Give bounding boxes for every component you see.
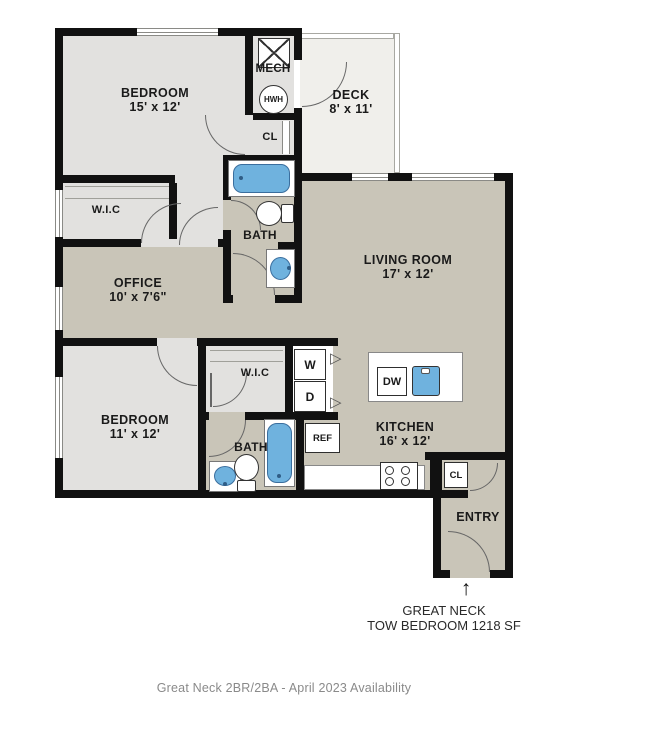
closet-shelf bbox=[65, 186, 169, 199]
label-text: MECH bbox=[246, 63, 300, 75]
floor-patch bbox=[223, 200, 231, 230]
label-text: BATH bbox=[221, 441, 281, 453]
wall bbox=[294, 181, 302, 303]
closet-shelf bbox=[210, 350, 283, 362]
bifold-door-icon: ▷ bbox=[330, 351, 342, 366]
plan-title-line2: TOW BEDROOM 1218 SF bbox=[314, 618, 574, 633]
stove-burner bbox=[385, 477, 394, 486]
wall bbox=[55, 490, 468, 498]
wall bbox=[55, 175, 175, 183]
wic-bottom-label: W.I.C bbox=[215, 367, 295, 379]
toilet bbox=[234, 454, 259, 481]
room-name: BEDROOM bbox=[85, 86, 225, 100]
dryer-label: D bbox=[306, 390, 315, 404]
label-text: ENTRY bbox=[444, 511, 512, 523]
window bbox=[137, 28, 218, 36]
label-text: W.I.C bbox=[215, 367, 295, 379]
room-label-kitchen: KITCHEN 16' x 12' bbox=[335, 420, 475, 448]
wall bbox=[296, 412, 304, 498]
tub-drain bbox=[239, 176, 243, 180]
entry-label: ENTRY bbox=[444, 511, 512, 523]
water-heater-label: HWH bbox=[264, 95, 283, 104]
water-heater: HWH bbox=[259, 85, 288, 114]
availability-caption: Great Neck 2BR/2BA - April 2023 Availabi… bbox=[84, 681, 484, 695]
stove-burner bbox=[385, 466, 394, 475]
wall bbox=[433, 490, 441, 578]
wall bbox=[197, 338, 338, 346]
refrigerator-label: REF bbox=[313, 433, 332, 444]
label-text: BATH bbox=[230, 229, 290, 241]
kitchen-sink-faucet bbox=[421, 368, 430, 374]
room-name: BEDROOM bbox=[65, 413, 205, 427]
sink-faucet bbox=[287, 266, 291, 270]
wic-top-label: W.I.C bbox=[66, 204, 146, 216]
washer-label: W bbox=[304, 358, 315, 372]
room-dims: 15' x 12' bbox=[85, 100, 225, 114]
room-dims: 17' x 12' bbox=[333, 267, 483, 281]
wall bbox=[55, 239, 141, 247]
dishwasher-box: DW bbox=[377, 367, 407, 396]
room-label-bedroom-1: BEDROOM 15' x 12' bbox=[85, 86, 225, 114]
toilet-tank bbox=[281, 204, 294, 223]
room-label-office: OFFICE 10' x 7'6" bbox=[68, 276, 208, 304]
door-leaf bbox=[210, 373, 212, 407]
room-dims: 8' x 11' bbox=[301, 102, 401, 116]
sink-faucet bbox=[223, 482, 227, 486]
label-text: CL bbox=[251, 131, 289, 143]
room-label-deck: DECK 8' x 11' bbox=[301, 88, 401, 116]
room-dims: 11' x 12' bbox=[65, 427, 205, 441]
window bbox=[55, 190, 63, 237]
window bbox=[412, 173, 494, 181]
window bbox=[352, 173, 388, 181]
toilet bbox=[256, 201, 282, 226]
washer-box: W bbox=[294, 349, 326, 380]
floor-patch bbox=[209, 412, 245, 420]
bifold-door-icon: ▷ bbox=[330, 395, 342, 410]
plan-title: GREAT NECK TOW BEDROOM 1218 SF bbox=[314, 603, 574, 633]
plan-title-line1: GREAT NECK bbox=[314, 603, 574, 618]
room-name: OFFICE bbox=[68, 276, 208, 290]
wall bbox=[294, 108, 302, 173]
room-name: DECK bbox=[301, 88, 401, 102]
tub-drain bbox=[277, 474, 281, 478]
room-label-bedroom-2: BEDROOM 11' x 12' bbox=[65, 413, 205, 441]
room-dims: 10' x 7'6" bbox=[68, 290, 208, 304]
stove-burner bbox=[401, 466, 410, 475]
bath-bottom-label: BATH bbox=[221, 441, 281, 453]
room-label-living-room: LIVING ROOM 17' x 12' bbox=[333, 253, 483, 281]
kitchen-closet-label: CL bbox=[450, 470, 463, 481]
stove-burner bbox=[401, 477, 410, 486]
window bbox=[55, 287, 63, 330]
room-name: KITCHEN bbox=[335, 420, 475, 434]
bath-top-label: BATH bbox=[230, 229, 290, 241]
wall bbox=[55, 338, 157, 346]
toilet-tank bbox=[237, 480, 256, 492]
floor-patch bbox=[157, 338, 197, 346]
floor-patch bbox=[233, 295, 275, 303]
floor-plan: HWH W D ▷ ▷ DW REF CL BEDROOM 15' x 12' … bbox=[0, 0, 650, 755]
label-text: W.I.C bbox=[66, 204, 146, 216]
deck-railing bbox=[300, 33, 394, 39]
dishwasher-label: DW bbox=[383, 376, 401, 388]
window bbox=[55, 377, 63, 458]
room-name: LIVING ROOM bbox=[333, 253, 483, 267]
dryer-box: D bbox=[294, 381, 326, 412]
room-dims: 16' x 12' bbox=[335, 434, 475, 448]
closet-top-label: CL bbox=[251, 131, 289, 143]
mech-label: MECH bbox=[246, 63, 300, 75]
wall bbox=[285, 346, 293, 412]
floor-corridor bbox=[223, 303, 302, 338]
wall bbox=[430, 452, 442, 498]
wall bbox=[294, 28, 302, 60]
kitchen-closet-box: CL bbox=[444, 462, 468, 488]
entry-arrow-icon: ↑ bbox=[451, 578, 481, 599]
